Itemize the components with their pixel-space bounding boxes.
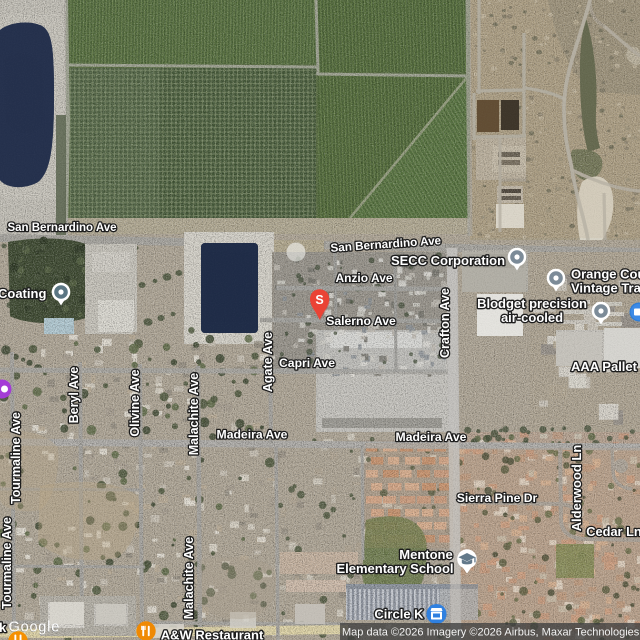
svg-text:Anzio Ave: Anzio Ave <box>335 271 392 285</box>
svg-text:Circle K: Circle K <box>374 607 424 622</box>
svg-text:AAA Pallet: AAA Pallet <box>571 359 638 374</box>
svg-text:Tourmaline Ave: Tourmaline Ave <box>9 412 23 504</box>
svg-text:Tourmaline Ave: Tourmaline Ave <box>0 517 14 609</box>
svg-text:S: S <box>315 293 323 307</box>
svg-text:Google: Google <box>9 620 61 636</box>
svg-text:Elementary School: Elementary School <box>336 561 453 576</box>
svg-text:SECC Corporation: SECC Corporation <box>391 253 505 268</box>
svg-text:Crafton Ave: Crafton Ave <box>438 288 452 358</box>
svg-text:Sierra Pine Dr: Sierra Pine Dr <box>457 491 538 505</box>
svg-text:Coating: Coating <box>0 286 46 301</box>
svg-text:A&W Restaurant: A&W Restaurant <box>161 628 264 640</box>
svg-text:Blodget precision: Blodget precision <box>477 296 587 311</box>
svg-text:Malachite Ave: Malachite Ave <box>187 373 201 455</box>
svg-text:Madeira Ave: Madeira Ave <box>217 428 288 442</box>
svg-text:Alderwood Ln: Alderwood Ln <box>569 445 584 532</box>
svg-text:Agate Ave: Agate Ave <box>261 332 275 392</box>
svg-text:Cedar Ln: Cedar Ln <box>586 524 640 539</box>
svg-text:Map data ©2026 Imagery ©2026 A: Map data ©2026 Imagery ©2026 Airbus, Max… <box>342 627 640 639</box>
svg-text:Vintage Tra: Vintage Tra <box>571 281 640 296</box>
svg-text:Mentone: Mentone <box>399 547 452 562</box>
svg-text:k: k <box>0 620 7 635</box>
svg-text:Madeira Ave: Madeira Ave <box>396 430 467 444</box>
svg-text:air-cooled: air-cooled <box>501 310 563 325</box>
svg-text:Orange Cou: Orange Cou <box>571 267 640 282</box>
svg-text:Salerno Ave: Salerno Ave <box>326 314 396 328</box>
svg-text:San Bernardino Ave: San Bernardino Ave <box>7 222 116 234</box>
svg-text:Malachite Ave: Malachite Ave <box>182 537 196 619</box>
svg-text:Olivine Ave: Olivine Ave <box>128 369 142 436</box>
svg-text:Capri Ave: Capri Ave <box>279 356 335 370</box>
svg-text:Beryl Ave: Beryl Ave <box>67 367 81 424</box>
